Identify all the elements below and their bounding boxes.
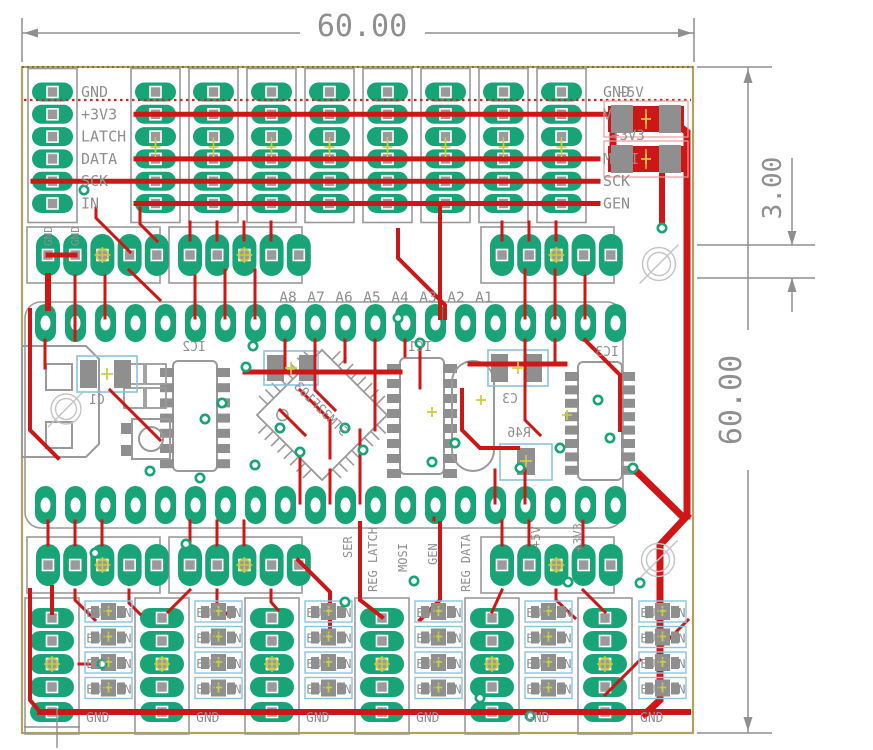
button-label: BUTTON — [640, 656, 685, 671]
dimension-right-height-value: 60.00 — [714, 355, 749, 445]
pad-hole — [267, 613, 278, 624]
pad-hole — [524, 250, 535, 261]
qfp-pin — [357, 377, 365, 385]
junction-marker — [476, 395, 486, 405]
dimension-arrow — [744, 69, 753, 83]
ic-pad — [565, 466, 579, 475]
pad-hole — [266, 87, 277, 98]
button-label: BUTTON — [196, 656, 241, 671]
via[interactable] — [564, 578, 572, 586]
through-hole-pad[interactable] — [155, 486, 176, 524]
analog-pin-label: A1 — [475, 290, 492, 306]
part-label: C3 — [502, 392, 518, 407]
header-pin-label: GND — [81, 83, 108, 101]
pad-hole — [377, 636, 388, 647]
resistor-pad[interactable] — [659, 105, 681, 133]
pad-hole — [43, 560, 54, 571]
via[interactable] — [394, 314, 402, 322]
through-hole-pad[interactable] — [250, 631, 294, 651]
qfp-pin — [371, 431, 379, 439]
qfp-pin — [333, 469, 341, 477]
gnd-label: GND — [86, 711, 110, 726]
power-label: +3V3 — [611, 128, 645, 144]
gnd-label: GND — [306, 711, 330, 726]
ic-pad — [387, 424, 401, 433]
through-hole-pad[interactable] — [575, 486, 596, 524]
qfp-pin — [265, 431, 273, 439]
pad-hole — [161, 316, 171, 331]
qfp-pin — [259, 396, 267, 404]
via[interactable] — [296, 448, 304, 456]
pad-hole — [605, 250, 616, 261]
pad-hole — [461, 316, 471, 331]
via[interactable] — [556, 444, 564, 452]
pad-hole — [267, 682, 278, 693]
button-label: BUTTON — [86, 605, 131, 620]
qfp-pin — [303, 469, 311, 477]
dimension-arrow — [24, 29, 38, 38]
pad-hole — [581, 498, 591, 513]
ic-pad — [443, 424, 457, 433]
pad-hole — [377, 682, 388, 693]
button-label: BUTTON — [86, 656, 131, 671]
pad-hole — [324, 87, 335, 98]
ic-label: IC2 — [182, 340, 205, 355]
dimension-arrow — [788, 278, 797, 292]
via[interactable] — [636, 579, 644, 587]
button-label: BUTTON — [306, 631, 351, 646]
header-pin-label: SCK — [603, 172, 630, 190]
through-hole-pad[interactable] — [140, 631, 184, 651]
through-hole-pad[interactable] — [193, 83, 234, 102]
header-pin-label: DATA — [81, 150, 117, 168]
pad-hole — [487, 682, 498, 693]
through-hole-pad[interactable] — [215, 486, 236, 524]
ic-footprint[interactable] — [387, 358, 457, 478]
button-label: BUTTON — [526, 682, 571, 697]
via[interactable] — [516, 464, 524, 472]
through-hole-pad[interactable] — [63, 544, 87, 586]
through-hole-pad[interactable] — [178, 544, 202, 586]
through-hole-pad[interactable] — [260, 544, 284, 586]
pad-hole — [611, 498, 621, 513]
through-hole-pad[interactable] — [125, 486, 146, 524]
through-hole-pad[interactable] — [32, 194, 73, 213]
header-pin-label: IN — [81, 195, 99, 213]
through-hole-pad[interactable] — [155, 304, 176, 342]
pad-hole — [556, 87, 567, 98]
through-hole-pad[interactable] — [425, 83, 466, 102]
through-hole-pad[interactable] — [287, 544, 311, 586]
button-label: BUTTON — [526, 631, 571, 646]
gnd-label: GND — [196, 711, 220, 726]
through-hole-pad[interactable] — [140, 608, 184, 628]
through-hole-pad[interactable] — [250, 608, 294, 628]
button-label: BUTTON — [86, 682, 131, 697]
through-hole-pad[interactable] — [483, 83, 524, 102]
button-label: BUTTON — [416, 656, 461, 671]
via[interactable] — [629, 464, 637, 472]
gnd-rotated-label: GND — [69, 226, 82, 246]
ic-footprint[interactable] — [565, 362, 635, 480]
pad-hole — [578, 560, 589, 571]
through-hole-pad[interactable] — [605, 304, 626, 342]
analog-pin-label: A3 — [419, 290, 436, 306]
button-label: BUTTON — [416, 631, 461, 646]
ic-pad — [160, 368, 174, 377]
pad-hole — [440, 87, 451, 98]
pad-hole — [131, 498, 141, 513]
cap-pad — [80, 360, 97, 388]
through-hole-pad[interactable] — [599, 544, 623, 586]
pad-hole — [47, 153, 58, 164]
mounting-hole[interactable] — [640, 245, 679, 284]
pad-hole — [157, 636, 168, 647]
through-hole-pad[interactable] — [572, 234, 596, 276]
pad-hole — [487, 613, 498, 624]
qfp-pin1-mark — [275, 407, 291, 423]
ic-pad — [160, 398, 174, 407]
pad-hole — [101, 498, 111, 513]
analog-pin-label: A2 — [447, 290, 464, 306]
through-hole-pad[interactable] — [395, 486, 416, 524]
button-label: BUTTON — [640, 682, 685, 697]
via[interactable] — [242, 363, 250, 371]
through-hole-pad[interactable] — [30, 677, 74, 697]
button-label: BUTTON — [416, 682, 461, 697]
pad-hole — [150, 87, 161, 98]
button-label: BUTTON — [306, 605, 351, 620]
qfp-pin — [332, 351, 340, 359]
ic-pad — [387, 379, 401, 388]
via[interactable] — [594, 396, 602, 404]
signal-label: REG LATCH — [366, 527, 380, 592]
pad-hole — [47, 131, 58, 142]
button-label: BUTTON — [86, 631, 131, 646]
via[interactable] — [201, 415, 209, 423]
signal-label: REG DATA — [459, 533, 473, 592]
copper-trace[interactable] — [670, 119, 687, 516]
through-hole-pad[interactable] — [365, 304, 386, 342]
dimension-arrow — [678, 29, 692, 38]
through-hole-pad[interactable] — [367, 83, 408, 102]
pad-hole — [341, 498, 351, 513]
through-hole-pad[interactable] — [185, 486, 206, 524]
pad-hole — [157, 682, 168, 693]
header-pin-label: Vcc — [603, 105, 630, 123]
ic-pad — [565, 372, 579, 381]
qfp-pin — [265, 390, 273, 398]
pad-hole — [221, 498, 231, 513]
resistor-pad[interactable] — [659, 145, 681, 173]
pcb-editor-canvas[interactable]: GND+3V3LATCHDATASCKINGNDVccMOSISCKGEN+5V… — [0, 0, 873, 750]
via[interactable] — [451, 439, 459, 447]
header-pin-label: LATCH — [81, 128, 126, 146]
pad-hole — [47, 636, 58, 647]
pad-hole — [487, 636, 498, 647]
dimension-hole-diameter-value: 3.00 — [758, 157, 788, 220]
through-hole-pad[interactable] — [605, 486, 626, 524]
pad-hole — [191, 498, 201, 513]
through-hole-pad[interactable] — [583, 631, 627, 651]
switch-pad — [121, 445, 131, 456]
through-hole-pad[interactable] — [251, 83, 292, 102]
pad-hole — [371, 316, 381, 331]
pad-hole — [431, 498, 441, 513]
through-hole-pad[interactable] — [95, 486, 116, 524]
cap-pad — [267, 355, 284, 381]
pad-hole — [157, 613, 168, 624]
header-pin-label: +3V3 — [81, 105, 117, 123]
signal-label: +5V — [529, 526, 543, 548]
gnd-label: GND — [640, 711, 664, 726]
analog-pin-label: A4 — [391, 290, 409, 306]
through-hole-pad[interactable] — [360, 631, 404, 651]
pad-hole — [266, 250, 277, 261]
ic-pad — [621, 439, 635, 448]
ic-pad — [621, 372, 635, 381]
ic-pad — [387, 409, 401, 418]
pad-hole — [600, 636, 611, 647]
ic-body — [173, 361, 217, 471]
pad-hole — [605, 560, 616, 571]
through-hole-pad[interactable] — [485, 304, 506, 342]
via[interactable] — [428, 458, 436, 466]
qfp-pin — [271, 438, 279, 446]
through-hole-pad[interactable] — [145, 544, 169, 586]
copper-trace[interactable] — [110, 390, 160, 440]
ic-pad — [621, 399, 635, 408]
ic-pad — [216, 429, 230, 438]
through-hole-pad[interactable] — [287, 234, 311, 276]
via[interactable] — [249, 342, 257, 350]
ic-pad — [621, 385, 635, 394]
signal-label: SER — [341, 536, 355, 558]
via[interactable] — [359, 446, 367, 454]
qfp-pin — [364, 383, 372, 391]
via[interactable] — [276, 424, 284, 432]
analog-pin-label: A5 — [363, 290, 380, 306]
through-hole-pad[interactable] — [470, 631, 514, 651]
ic-pad — [216, 383, 230, 392]
pad-hole — [124, 560, 135, 571]
through-hole-pad[interactable] — [135, 83, 176, 102]
gnd-label: GND — [526, 711, 550, 726]
through-hole-pad[interactable] — [118, 544, 142, 586]
dimension-top-width-value: 60.00 — [317, 9, 407, 44]
pad-hole — [371, 498, 381, 513]
ic-pad — [621, 426, 635, 435]
part-label: R46 — [507, 426, 530, 441]
through-hole-pad[interactable] — [65, 486, 86, 524]
cap-pad — [491, 354, 508, 382]
through-hole-pad[interactable] — [455, 304, 476, 342]
pad-hole — [71, 498, 81, 513]
qfp-pin — [284, 450, 292, 458]
through-hole-pad[interactable] — [32, 105, 73, 124]
through-hole-pad[interactable] — [517, 544, 541, 586]
qfp-pin — [277, 444, 285, 452]
ic-body — [400, 358, 444, 474]
through-hole-pad[interactable] — [35, 486, 56, 524]
through-hole-pad[interactable] — [599, 234, 623, 276]
button-label: BUTTON — [416, 605, 461, 620]
through-hole-pad[interactable] — [541, 83, 582, 102]
via[interactable] — [218, 399, 226, 407]
qfp-pin — [364, 438, 372, 446]
pad-hole — [311, 316, 321, 331]
switch-pad — [121, 423, 131, 434]
ic-pad — [443, 469, 457, 478]
analog-pin-label: A7 — [307, 290, 324, 306]
qfp-pin — [345, 457, 353, 465]
via[interactable] — [91, 549, 99, 557]
via[interactable] — [251, 461, 259, 469]
ic-pad — [621, 412, 635, 421]
header-pin-label: GEN — [603, 195, 630, 213]
pad-hole — [70, 560, 81, 571]
via[interactable] — [606, 434, 614, 442]
through-hole-pad[interactable] — [335, 486, 356, 524]
through-hole-pad[interactable] — [309, 83, 350, 102]
ic-pad — [565, 439, 579, 448]
junction-marker — [101, 368, 113, 380]
through-hole-pad[interactable] — [490, 544, 514, 586]
via[interactable] — [658, 224, 666, 232]
button-label: BUTTON — [196, 631, 241, 646]
qfp-pin — [339, 463, 347, 471]
pad-hole — [281, 316, 291, 331]
via[interactable] — [196, 474, 204, 482]
usb-pad — [46, 364, 72, 390]
pad-hole — [266, 560, 277, 571]
pad-hole — [311, 498, 321, 513]
through-hole-pad[interactable] — [36, 544, 60, 586]
ic-pad — [565, 385, 579, 394]
through-hole-pad[interactable] — [32, 149, 73, 168]
button-label: BUTTON — [526, 605, 571, 620]
through-hole-pad[interactable] — [545, 486, 566, 524]
pad-hole — [267, 636, 278, 647]
header-pin-label: SCK — [81, 172, 108, 190]
pad-hole — [498, 87, 509, 98]
through-hole-pad[interactable] — [425, 304, 446, 342]
through-hole-pad[interactable] — [275, 304, 296, 342]
through-hole-pad[interactable] — [32, 83, 73, 102]
pad-hole — [461, 498, 471, 513]
button-label: BUTTON — [306, 682, 351, 697]
power-label: +5V — [618, 85, 644, 101]
ic-pad — [387, 469, 401, 478]
through-hole-pad[interactable] — [365, 486, 386, 524]
signal-label: GEN — [426, 543, 440, 565]
pad-hole — [151, 560, 162, 571]
ic-pad — [387, 454, 401, 463]
dimension-arrow — [788, 231, 797, 245]
button-label: BUTTON — [196, 605, 241, 620]
through-hole-pad[interactable] — [125, 304, 146, 342]
pad-hole — [47, 87, 58, 98]
through-hole-pad[interactable] — [32, 127, 73, 146]
gnd-rotated-label: GND — [42, 226, 55, 246]
cap-pad — [299, 355, 316, 381]
copper-trace[interactable] — [633, 468, 684, 518]
pad-hole — [578, 250, 589, 261]
pad-hole — [185, 250, 196, 261]
pad-hole — [47, 198, 58, 209]
pad-hole — [551, 498, 561, 513]
signal-label: MOSI — [396, 543, 410, 572]
through-hole-pad[interactable] — [30, 631, 74, 651]
through-hole-pad[interactable] — [245, 486, 266, 524]
ic-pad — [160, 459, 174, 468]
pad-hole — [41, 498, 51, 513]
dimension-arrow — [744, 717, 753, 731]
pad-hole — [382, 87, 393, 98]
button-label: BUTTON — [526, 656, 571, 671]
pad-hole — [47, 682, 58, 693]
ic-label: IC1 — [408, 340, 431, 355]
ic-label: IC3 — [595, 345, 618, 360]
pad-hole — [212, 560, 223, 571]
pad-hole — [524, 560, 535, 571]
through-hole-pad[interactable] — [250, 677, 294, 697]
through-hole-pad[interactable] — [305, 486, 326, 524]
ic-pad — [387, 439, 401, 448]
through-hole-pad[interactable] — [305, 304, 326, 342]
button-label: BUTTON — [306, 656, 351, 671]
pad-hole — [341, 316, 351, 331]
ic-pad — [565, 452, 579, 461]
pad-hole — [212, 250, 223, 261]
qfp-pin — [377, 425, 385, 433]
through-hole-pad[interactable] — [455, 486, 476, 524]
through-hole-pad[interactable] — [140, 677, 184, 697]
via[interactable] — [182, 540, 190, 548]
hole-slash — [640, 245, 679, 284]
ic-pad — [443, 409, 457, 418]
pad-hole — [208, 87, 219, 98]
ic-pad — [216, 459, 230, 468]
via[interactable] — [146, 467, 154, 475]
qfp-pin — [258, 425, 266, 433]
pad-hole — [281, 498, 291, 513]
signal-label: +3V3 — [571, 523, 585, 552]
through-hole-pad[interactable] — [275, 486, 296, 524]
pad-hole — [401, 498, 411, 513]
via[interactable] — [410, 577, 418, 585]
qfp-pin — [290, 457, 298, 465]
part-label: C1 — [89, 393, 105, 408]
through-hole-pad[interactable] — [335, 304, 356, 342]
qfp-pin — [376, 396, 384, 404]
pad-hole — [600, 613, 611, 624]
cap-pad — [525, 354, 542, 382]
ic-pad — [216, 368, 230, 377]
button-label: BUTTON — [640, 605, 685, 620]
pad-hole — [293, 250, 304, 261]
through-hole-pad[interactable] — [360, 677, 404, 697]
pad-hole — [151, 250, 162, 261]
button-label: BUTTON — [196, 682, 241, 697]
via[interactable] — [476, 694, 484, 702]
analog-pin-label: A6 — [335, 290, 352, 306]
pad-hole — [497, 250, 508, 261]
through-hole-pad[interactable] — [205, 544, 229, 586]
header-pin-label: MOSI — [603, 150, 639, 168]
pad-hole — [185, 560, 196, 571]
analog-pin-label: A8 — [279, 290, 296, 306]
